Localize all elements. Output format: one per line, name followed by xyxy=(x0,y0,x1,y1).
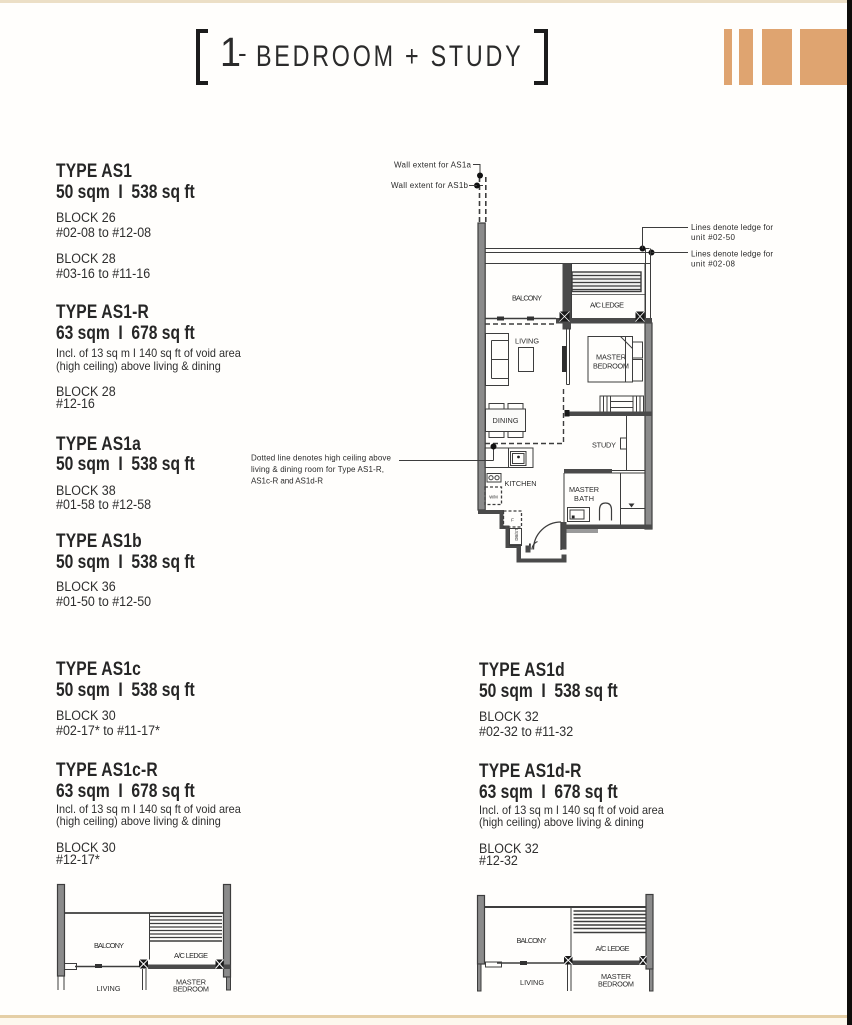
svg-text:LIVING: LIVING xyxy=(97,984,121,993)
svg-text:Dotted line denotes high ceili: Dotted line denotes high ceiling above xyxy=(251,454,392,463)
svg-text:LIVING: LIVING xyxy=(515,337,539,346)
svg-text:MASTER: MASTER xyxy=(569,485,599,494)
svg-text:unit #02-08: unit #02-08 xyxy=(691,260,736,269)
svg-text:BEDROOM: BEDROOM xyxy=(173,985,209,994)
svg-text:BEDROOM: BEDROOM xyxy=(598,980,634,989)
svg-text:DINING: DINING xyxy=(493,416,519,425)
svg-text:BALCONY: BALCONY xyxy=(94,941,124,950)
svg-text:F: F xyxy=(511,518,514,523)
svg-text:MASTER: MASTER xyxy=(596,353,626,362)
svg-text:BALCONY: BALCONY xyxy=(512,294,542,303)
svg-text:BEDROOM: BEDROOM xyxy=(593,362,629,371)
svg-text:KITCHEN: KITCHEN xyxy=(505,479,537,488)
svg-text:Wall extent for AS1b: Wall extent for AS1b xyxy=(391,181,469,190)
svg-text:Lines denote ledge for: Lines denote ledge for xyxy=(691,223,773,232)
svg-text:Lines denote ledge for: Lines denote ledge for xyxy=(691,250,773,259)
svg-text:unit #02-50: unit #02-50 xyxy=(691,233,736,242)
svg-text:BALCONY: BALCONY xyxy=(517,936,547,945)
svg-text:living & dining room for Type: living & dining room for Type AS1-R, xyxy=(251,465,384,474)
svg-text:A/C LEDGE: A/C LEDGE xyxy=(596,944,630,953)
svg-text:STUDY: STUDY xyxy=(592,441,616,450)
svg-text:LIVING: LIVING xyxy=(520,978,544,987)
svg-text:DB/ST: DB/ST xyxy=(514,528,519,541)
svg-text:W/M: W/M xyxy=(489,495,498,500)
svg-text:AS1c-R and AS1d-R: AS1c-R and AS1d-R xyxy=(251,477,323,486)
svg-text:BATH: BATH xyxy=(574,494,594,503)
svg-text:A/C LEDGE: A/C LEDGE xyxy=(174,951,208,960)
svg-text:Wall extent for AS1a: Wall extent for AS1a xyxy=(394,161,472,170)
svg-text:A/C LEDGE: A/C LEDGE xyxy=(590,301,624,310)
